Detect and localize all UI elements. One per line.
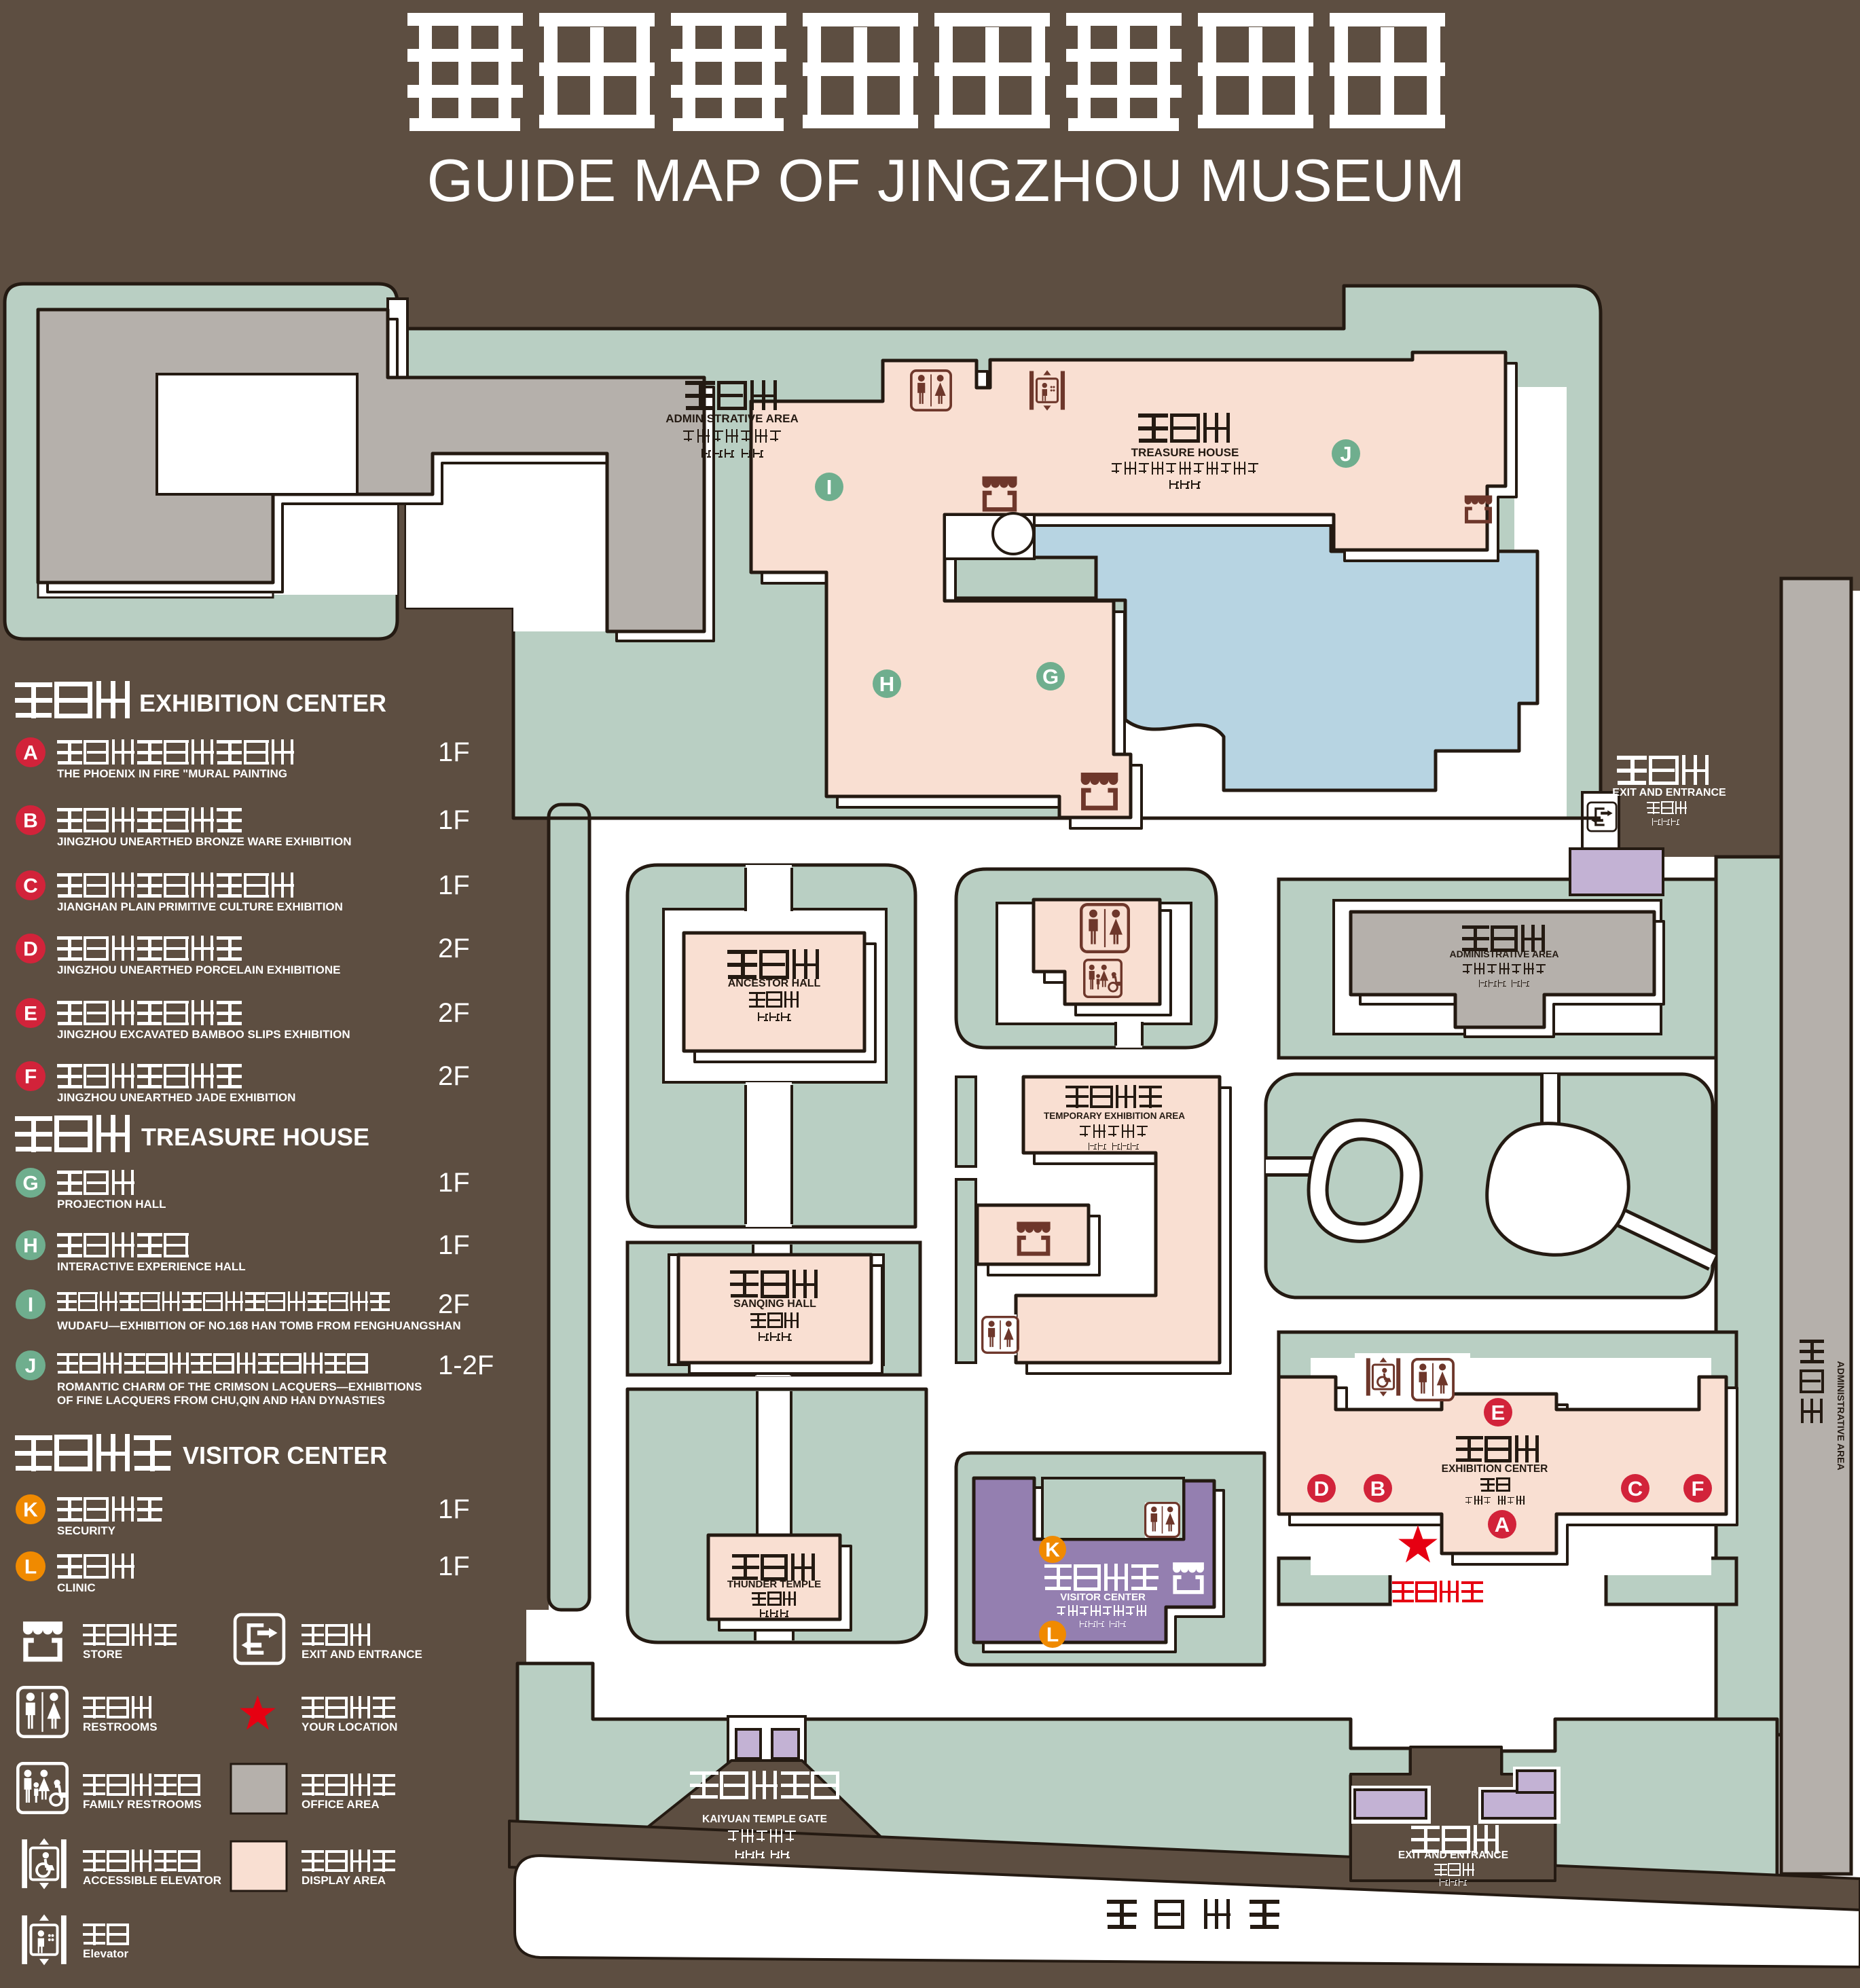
svg-text:JINGZHOU EXCAVATED BAMBOO SLIP: JINGZHOU EXCAVATED BAMBOO SLIPS EXHIBITI…	[57, 1028, 350, 1041]
svg-text:E: E	[24, 1003, 37, 1025]
svg-text:ADMINISTRATIVE AREA: ADMINISTRATIVE AREA	[1450, 949, 1559, 959]
svg-text:A: A	[1495, 1513, 1510, 1536]
svg-text:L: L	[1046, 1624, 1059, 1646]
svg-text:2F: 2F	[438, 934, 470, 963]
svg-text:JINGZHOU UNEARTHED BRONZE WARE: JINGZHOU UNEARTHED BRONZE WARE EXHIBITIO…	[57, 835, 352, 848]
svg-text:OFFICE AREA: OFFICE AREA	[302, 1798, 380, 1811]
svg-text:C: C	[23, 875, 38, 898]
svg-text:2F: 2F	[438, 1061, 470, 1091]
svg-text:I: I	[28, 1294, 33, 1317]
svg-text:VISITOR CENTER: VISITOR CENTER	[183, 1441, 387, 1469]
svg-text:L: L	[24, 1556, 37, 1579]
svg-text:SANQING HALL: SANQING HALL	[733, 1298, 816, 1310]
svg-text:D: D	[23, 938, 38, 961]
svg-text:1F: 1F	[438, 870, 470, 900]
svg-text:THE PHOENIX IN FIRE "MURAL PAI: THE PHOENIX IN FIRE "MURAL PAINTING	[57, 767, 287, 780]
svg-text:E: E	[1491, 1401, 1506, 1424]
svg-text:Elevator: Elevator	[83, 1947, 128, 1960]
svg-text:GUIDE MAP OF JINGZHOU MUSEUM: GUIDE MAP OF JINGZHOU MUSEUM	[427, 147, 1465, 214]
svg-text:ADMINISTRATIVE AREA: ADMINISTRATIVE AREA	[665, 412, 799, 425]
svg-text:WUDAFU—EXHIBITION OF NO.168 HA: WUDAFU—EXHIBITION OF NO.168 HAN TOMB FRO…	[57, 1319, 461, 1332]
svg-text:1F: 1F	[438, 1168, 470, 1198]
svg-text:KAIYUAN TEMPLE GATE: KAIYUAN TEMPLE GATE	[702, 1814, 827, 1825]
svg-text:STORE: STORE	[83, 1648, 122, 1661]
svg-text:VISITOR CENTER: VISITOR CENTER	[1060, 1591, 1146, 1603]
svg-text:D: D	[1314, 1477, 1329, 1501]
svg-text:J: J	[25, 1355, 37, 1378]
svg-text:EXHIBITION CENTER: EXHIBITION CENTER	[1442, 1463, 1548, 1475]
svg-text:OF FINE LACQUERS FROM CHU,QIN: OF FINE LACQUERS FROM CHU,QIN AND HAN DY…	[57, 1394, 385, 1407]
svg-text:INTERACTIVE EXPERIENCE HALL: INTERACTIVE EXPERIENCE HALL	[57, 1260, 246, 1273]
svg-text:RESTROOMS: RESTROOMS	[83, 1720, 158, 1733]
svg-text:EXHIBITION CENTER: EXHIBITION CENTER	[139, 689, 386, 717]
svg-text:JINGZHOU UNEARTHED JADE EXHIBI: JINGZHOU UNEARTHED JADE EXHIBITION	[57, 1091, 295, 1104]
svg-text:ANCESTOR HALL: ANCESTOR HALL	[728, 978, 821, 989]
svg-text:EXIT AND ENTRANCE: EXIT AND ENTRANCE	[302, 1648, 422, 1661]
svg-text:2F: 2F	[438, 1289, 470, 1319]
svg-text:G: G	[1042, 665, 1059, 688]
svg-text:H: H	[879, 672, 894, 696]
svg-text:YOUR LOCATION: YOUR LOCATION	[302, 1720, 397, 1733]
svg-text:THUNDER TEMPLE: THUNDER TEMPLE	[727, 1579, 821, 1590]
svg-text:PROJECTION HALL: PROJECTION HALL	[57, 1198, 166, 1211]
svg-text:K: K	[1045, 1539, 1060, 1562]
svg-text:DISPLAY AREA: DISPLAY AREA	[302, 1874, 386, 1887]
svg-text:F: F	[24, 1066, 37, 1088]
svg-text:SECURITY: SECURITY	[57, 1524, 116, 1537]
svg-text:K: K	[23, 1499, 38, 1522]
svg-text:EXIT AND ENTRANCE: EXIT AND ENTRANCE	[1398, 1849, 1508, 1861]
svg-text:ACCESSIBLE ELEVATOR: ACCESSIBLE ELEVATOR	[83, 1874, 221, 1887]
svg-text:1F: 1F	[438, 1551, 470, 1581]
svg-text:JIANGHAN PLAIN PRIMITIVE CULTU: JIANGHAN PLAIN PRIMITIVE CULTURE EXHIBIT…	[57, 900, 343, 913]
svg-text:G: G	[22, 1173, 38, 1195]
svg-text:B: B	[1370, 1477, 1385, 1501]
svg-text:C: C	[1628, 1477, 1643, 1501]
svg-text:FAMILY RESTROOMS: FAMILY RESTROOMS	[83, 1798, 202, 1811]
svg-text:1F: 1F	[438, 1230, 470, 1260]
svg-text:ROMANTIC CHARM OF THE CRIMSON: ROMANTIC CHARM OF THE CRIMSON LACQUERS—E…	[57, 1380, 422, 1393]
svg-text:B: B	[23, 810, 38, 832]
svg-text:ADMINISTRATIVE AREA: ADMINISTRATIVE AREA	[1836, 1361, 1846, 1471]
svg-text:TREASURE HOUSE: TREASURE HOUSE	[141, 1123, 369, 1151]
svg-text:TREASURE HOUSE: TREASURE HOUSE	[1131, 446, 1239, 459]
svg-text:1F: 1F	[438, 1494, 470, 1524]
svg-text:TEMPORARY EXHIBITION AREA: TEMPORARY EXHIBITION AREA	[1044, 1111, 1185, 1121]
svg-text:EXIT AND ENTRANCE: EXIT AND ENTRANCE	[1612, 787, 1726, 798]
svg-text:J: J	[1340, 442, 1351, 466]
svg-text:1-2F: 1-2F	[438, 1350, 494, 1380]
svg-text:1F: 1F	[438, 737, 470, 767]
svg-text:1F: 1F	[438, 805, 470, 835]
svg-text:F: F	[1692, 1477, 1704, 1501]
svg-text:CLINIC: CLINIC	[57, 1581, 96, 1594]
svg-text:2F: 2F	[438, 998, 470, 1028]
svg-text:JINGZHOU UNEARTHED PORCELAIN E: JINGZHOU UNEARTHED PORCELAIN EXHIBITIONE	[57, 963, 340, 976]
svg-text:A: A	[23, 742, 38, 765]
svg-text:H: H	[23, 1235, 38, 1257]
svg-text:I: I	[826, 475, 833, 499]
